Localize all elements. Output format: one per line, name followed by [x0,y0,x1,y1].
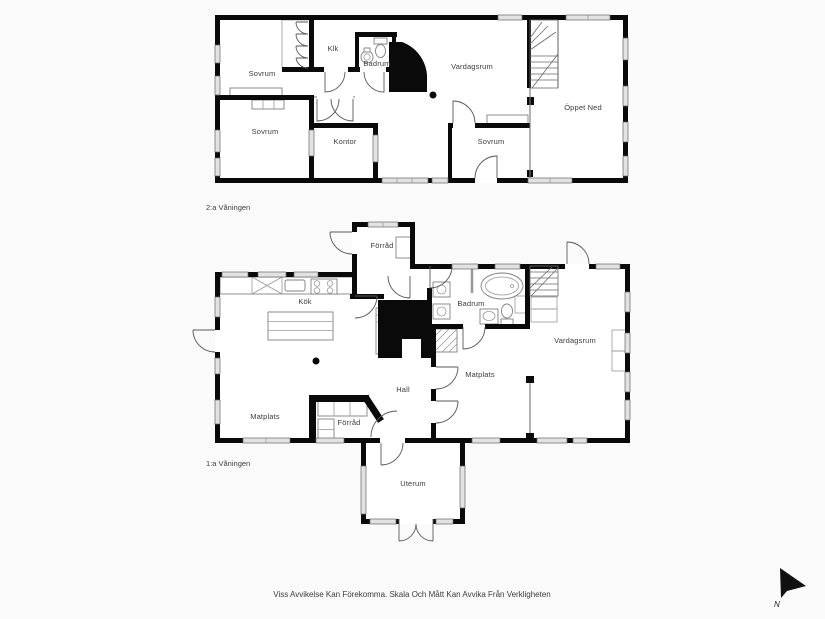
storage-cabinet [396,237,411,258]
floor-1-plan: Förråd Kök Badrum Vardagsrum Matplats Ha… [193,222,630,541]
room-label-matplats: Matplats [465,370,495,379]
toilet [374,38,387,44]
room-label-uterum: Uterum [400,479,426,488]
floorplan-canvas: Sovrum Klk Badrum Vardagsrum Öppet Ned S… [0,0,825,619]
dresser [252,100,284,109]
room-label-sovrum-sw: Sovrum [252,127,279,136]
disclaimer-text: Viss Avvikelse Kan Förekomma. Skala Och … [273,590,550,599]
room-label-sovrum-nw: Sovrum [249,69,276,78]
room-label-vardagsrum-f1: Vardagsrum [554,336,596,345]
washer [433,282,450,297]
hearth [434,329,457,352]
kitchen-sink [285,280,305,291]
north-label: N [774,600,780,609]
room-label-badrum-f2: Badrum [363,59,390,68]
dresser [487,115,528,124]
north-arrow-icon [780,568,806,598]
room-label-kok: Kök [298,297,311,306]
chimney-dot [430,92,437,99]
room-label-hall: Hall [396,385,410,394]
floor1-caption: 1:a Våningen [206,459,250,468]
floor2-caption: 2:a Våningen [206,203,250,212]
room-label-klk: Klk [328,44,339,53]
north-compass: N [774,568,806,609]
floor-2-plan: Sovrum Klk Badrum Vardagsrum Öppet Ned S… [206,15,628,212]
dryer [433,304,450,319]
room-label-badrum-f1: Badrum [457,299,484,308]
room-label-oppet-ned: Öppet Ned [564,103,602,112]
room-label-sovrum-se: Sovrum [478,137,505,146]
room-label-matplats-sw: Matplats [250,412,280,421]
room-label-forrad-s: Förråd [338,418,361,427]
room-label-forrad-n: Förråd [371,241,394,250]
chimney-dot [313,358,320,365]
room-label-kontor: Kontor [334,137,357,146]
room-label-vardagsrum-f2: Vardagsrum [451,62,493,71]
kitchen-island [268,312,333,340]
